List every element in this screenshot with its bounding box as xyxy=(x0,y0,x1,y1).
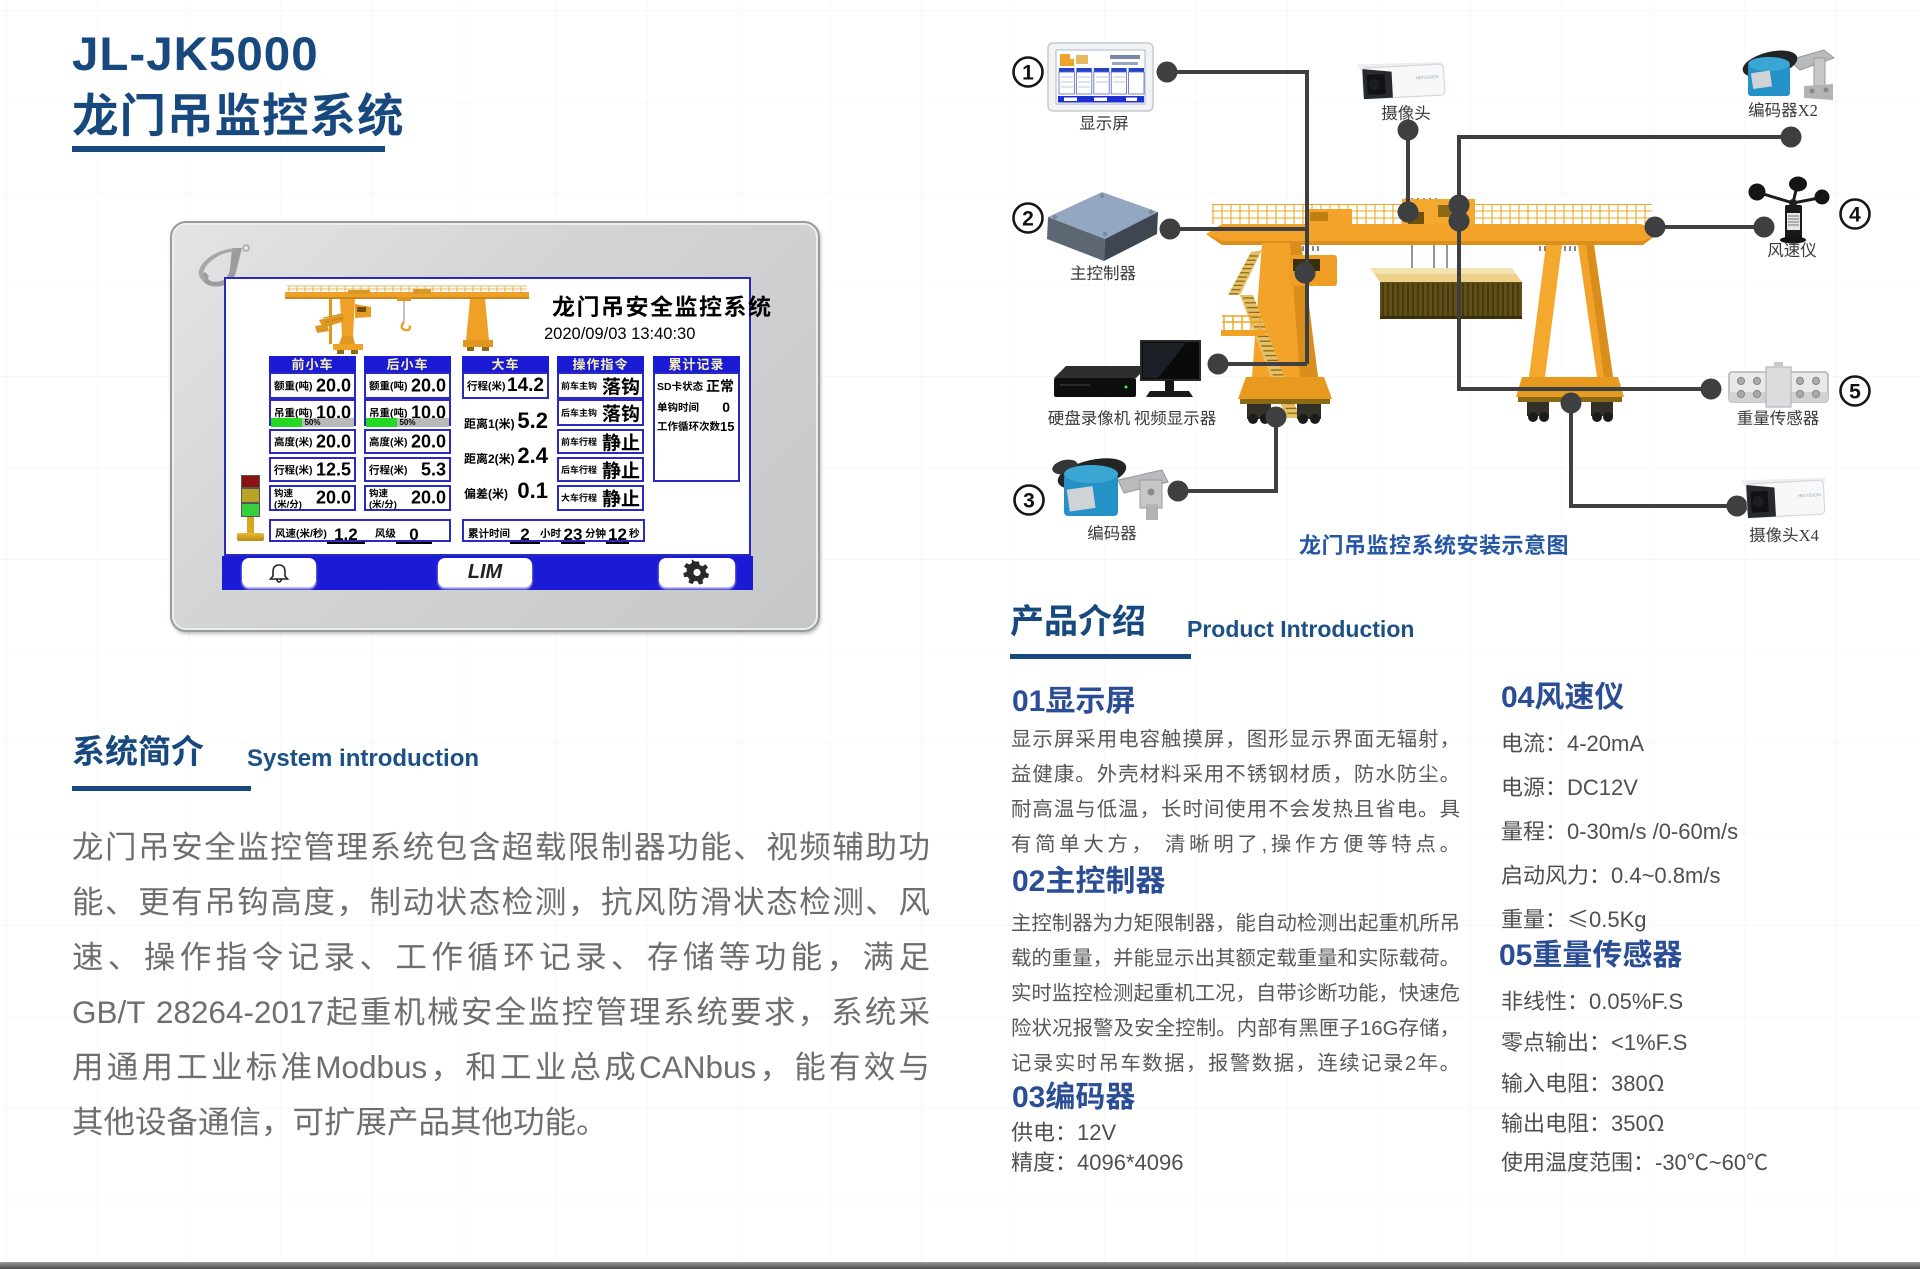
svg-text:风速仪: 风速仪 xyxy=(1767,237,1817,261)
svg-text:3: 3 xyxy=(1023,490,1035,513)
svg-text:编码器: 编码器 xyxy=(1087,520,1137,544)
svg-text:视频显示器: 视频显示器 xyxy=(1134,405,1217,429)
svg-text:编码器X2: 编码器X2 xyxy=(1748,97,1818,121)
svg-text:4: 4 xyxy=(1849,204,1861,227)
svg-text:摄像头X4: 摄像头X4 xyxy=(1749,522,1819,546)
svg-text:龙门吊监控系统安装示意图: 龙门吊监控系统安装示意图 xyxy=(1299,528,1569,560)
svg-text:显示屏: 显示屏 xyxy=(1079,110,1129,134)
svg-text:主控制器: 主控制器 xyxy=(1070,260,1137,284)
svg-text:硬盘录像机: 硬盘录像机 xyxy=(1048,405,1131,429)
svg-text:重量传感器: 重量传感器 xyxy=(1737,405,1820,429)
svg-text:摄像头: 摄像头 xyxy=(1381,100,1431,124)
svg-text:5: 5 xyxy=(1849,381,1861,404)
svg-text:2: 2 xyxy=(1022,208,1034,231)
svg-text:1: 1 xyxy=(1022,62,1034,85)
